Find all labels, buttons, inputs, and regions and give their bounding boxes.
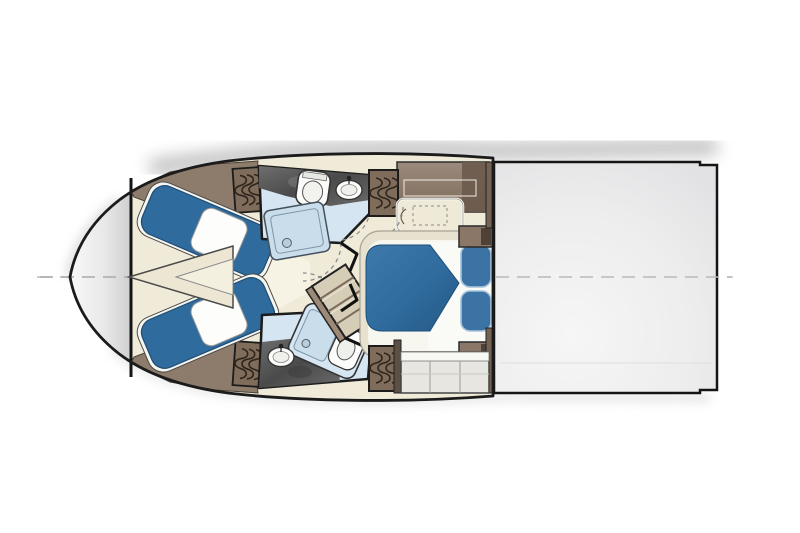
master-hanging-locker-top: [369, 170, 398, 216]
yacht-floor-plan-image: [0, 0, 800, 533]
master-seat: [397, 199, 463, 232]
nightstand-top: [459, 226, 493, 247]
master-cabin: [360, 162, 497, 393]
master-pillow-top: [461, 245, 491, 287]
bow-hanging-locker-bottom: [232, 341, 262, 387]
engine-room: [494, 162, 731, 393]
master-berth: [360, 231, 497, 359]
bow-hanging-locker-top: [232, 167, 262, 213]
master-pillow-bottom: [461, 291, 491, 331]
floor-plan-canvas: [0, 0, 800, 533]
faucet-forward: [347, 176, 352, 181]
master-tall-locker: [394, 340, 401, 393]
shower-pan-forward: [263, 201, 331, 261]
master-bottom-drawers: [401, 352, 489, 393]
faucet-aft: [279, 344, 284, 349]
